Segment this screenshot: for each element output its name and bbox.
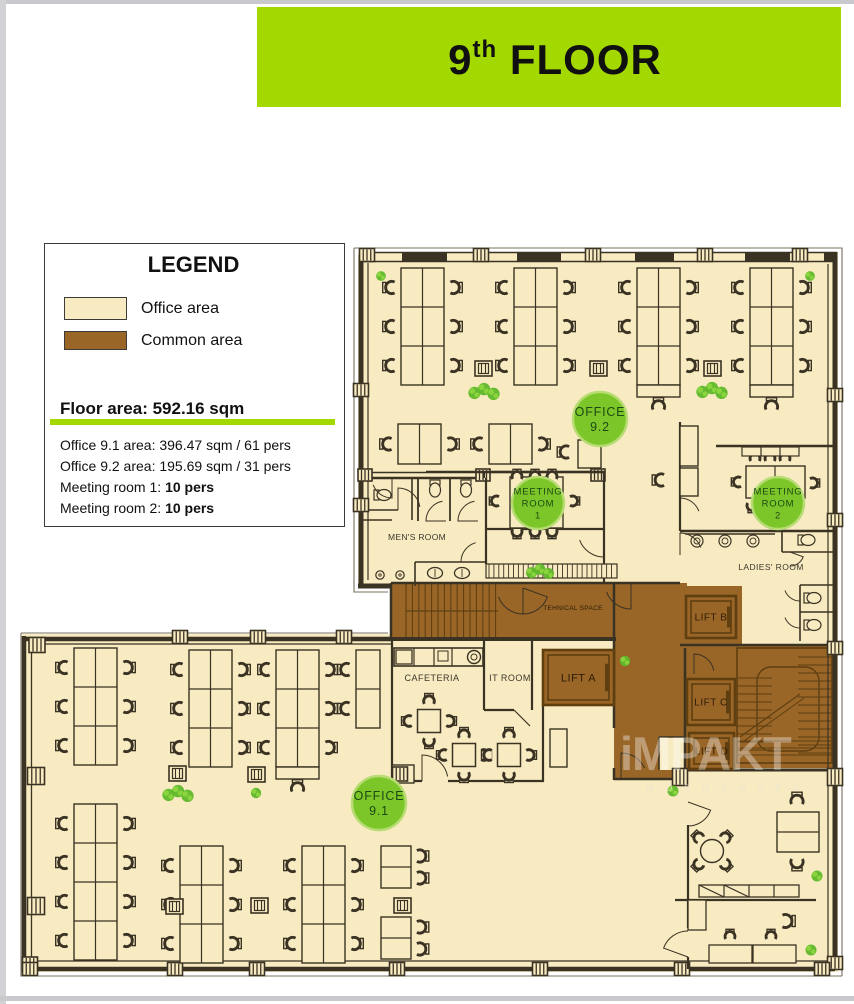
svg-text:LIFT B: LIFT B <box>695 613 728 624</box>
svg-text:9.1: 9.1 <box>369 804 389 818</box>
svg-text:OFFICE: OFFICE <box>354 789 405 803</box>
svg-text:MEN'S ROOM: MEN'S ROOM <box>388 532 446 542</box>
svg-text:LIFT A: LIFT A <box>561 672 596 684</box>
svg-text:1: 1 <box>535 510 541 521</box>
svg-text:TEHNICAL SPACE: TEHNICAL SPACE <box>543 605 603 612</box>
svg-text:MEETING: MEETING <box>514 486 563 497</box>
svg-text:LADIES' ROOM: LADIES' ROOM <box>738 562 803 572</box>
svg-text:IT ROOM: IT ROOM <box>489 673 531 683</box>
svg-text:LIFT C: LIFT C <box>694 698 727 709</box>
svg-text:МОБИЛИАРИ: МОБИЛИАРИ <box>646 783 812 793</box>
svg-text:9.2: 9.2 <box>590 420 610 434</box>
svg-text:OFFICE: OFFICE <box>575 405 626 419</box>
svg-text:2: 2 <box>775 510 781 521</box>
svg-text:ROOM: ROOM <box>762 498 795 509</box>
svg-text:ROOM: ROOM <box>522 498 555 509</box>
svg-text:CAFETERIA: CAFETERIA <box>404 673 459 683</box>
svg-text:iMPAKT: iMPAKT <box>620 727 792 780</box>
svg-text:MEETING: MEETING <box>754 486 803 497</box>
